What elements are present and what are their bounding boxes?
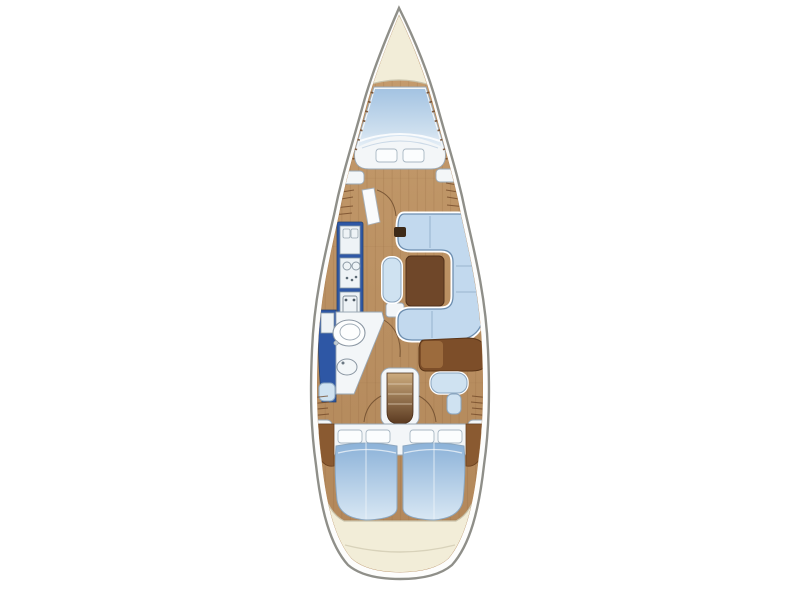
latch [353,299,356,302]
pillow [438,430,462,443]
pillow [338,430,362,443]
salon-stool [383,258,401,302]
stove-knob [346,277,349,280]
pillow [366,430,390,443]
stove-knob [351,279,354,282]
salon-table [406,256,444,306]
flush-pump [334,341,338,345]
mast-post [394,227,406,237]
yacht-floorplan [0,0,800,600]
bow-deck [368,15,430,85]
pillow [410,430,434,443]
stove-knob [355,276,358,279]
nav-seat-extension [447,394,461,414]
latch [345,299,348,302]
pillow [376,149,397,162]
pillow [403,149,424,162]
yacht-floorplan-canvas [0,0,800,600]
nav-seat [431,373,467,393]
companionway-steps [387,373,413,424]
wash-basin [337,359,357,375]
chart-table-lid [421,341,443,368]
stool-cushion [383,258,401,302]
head-bench [319,383,335,401]
faucet [342,362,345,365]
head-locker [321,313,334,333]
